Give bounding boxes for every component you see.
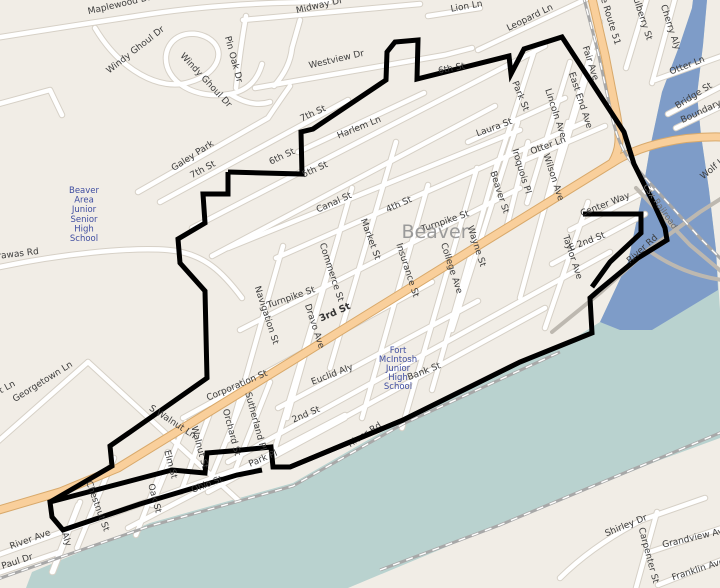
school-label: Area xyxy=(74,196,94,206)
school-label: School xyxy=(70,234,98,244)
school-label: School xyxy=(384,382,412,392)
map-canvas[interactable]: Maplewood DrWindy Ghoul DrWindy Ghoul Dr… xyxy=(0,0,720,588)
city-label: Beaver xyxy=(401,221,468,243)
map-image[interactable]: Maplewood DrWindy Ghoul DrWindy Ghoul Dr… xyxy=(0,0,720,588)
school-label: Senior xyxy=(70,215,98,225)
school-label: Junior xyxy=(71,205,97,215)
school-label: High xyxy=(74,224,94,234)
school-label: Beaver xyxy=(69,186,100,196)
